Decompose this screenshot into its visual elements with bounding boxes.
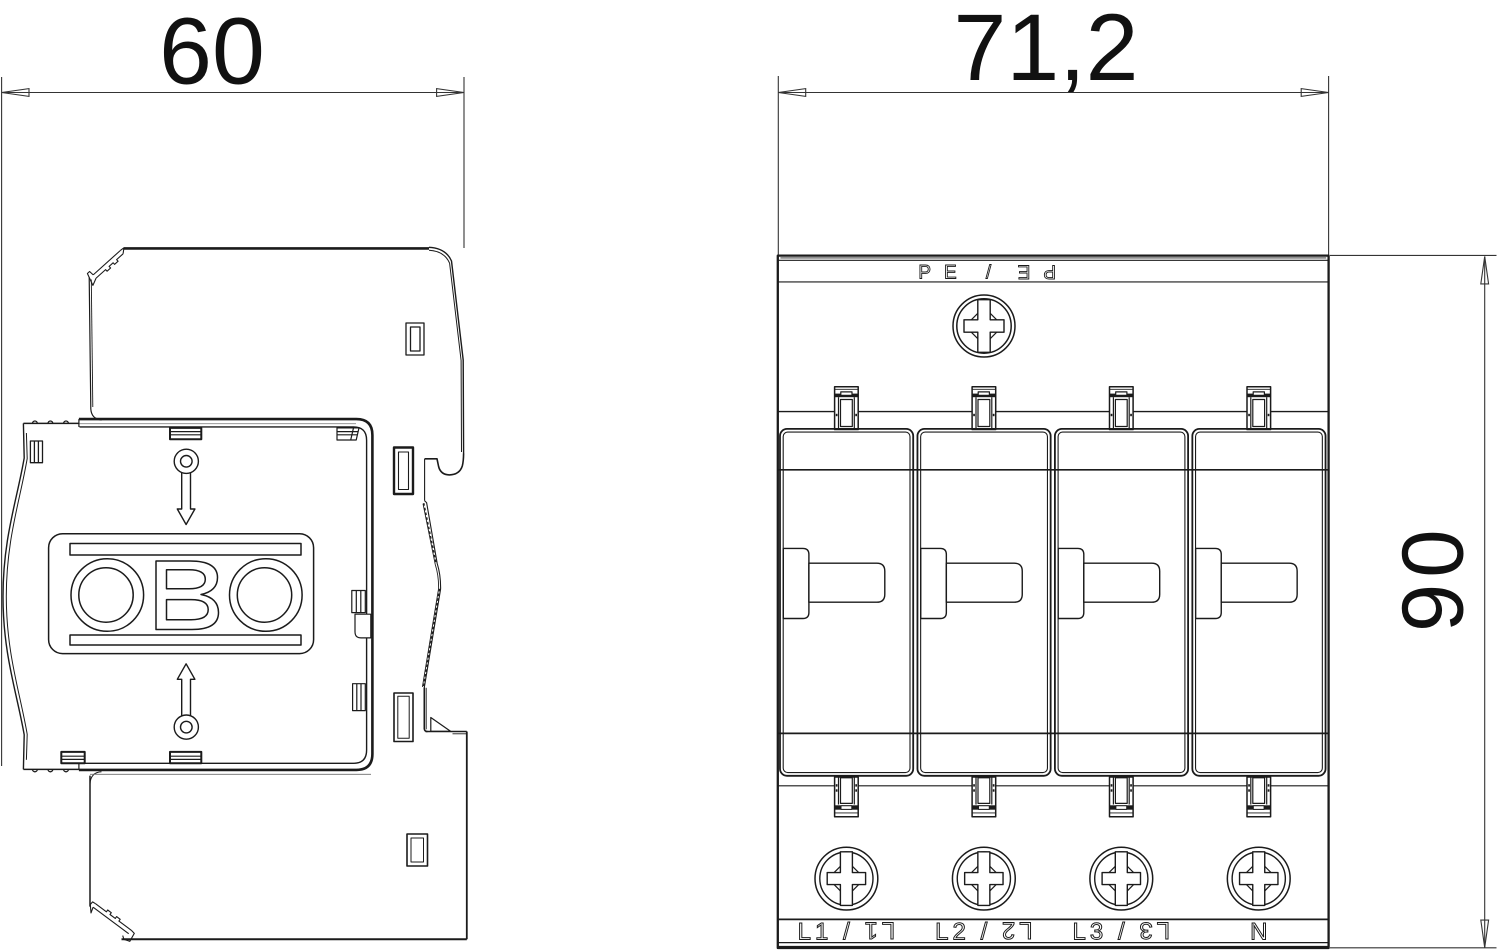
- svg-text:L3: L3: [1073, 918, 1108, 945]
- svg-text:PE: PE: [1005, 261, 1056, 282]
- svg-text:/: /: [1118, 918, 1125, 945]
- svg-text:L1: L1: [798, 918, 833, 945]
- svg-text:L2: L2: [935, 918, 970, 945]
- svg-text:L3: L3: [1135, 916, 1170, 943]
- svg-text:L1: L1: [860, 916, 895, 943]
- svg-text:L2: L2: [998, 916, 1033, 943]
- svg-text:N: N: [1250, 918, 1267, 945]
- svg-text:/: /: [981, 918, 988, 945]
- svg-text:60: 60: [159, 0, 265, 105]
- svg-text:71,2: 71,2: [954, 0, 1139, 101]
- svg-text:90: 90: [1385, 523, 1482, 632]
- svg-text:PE: PE: [918, 263, 969, 284]
- svg-text:/: /: [843, 918, 850, 945]
- svg-text:/: /: [986, 263, 992, 284]
